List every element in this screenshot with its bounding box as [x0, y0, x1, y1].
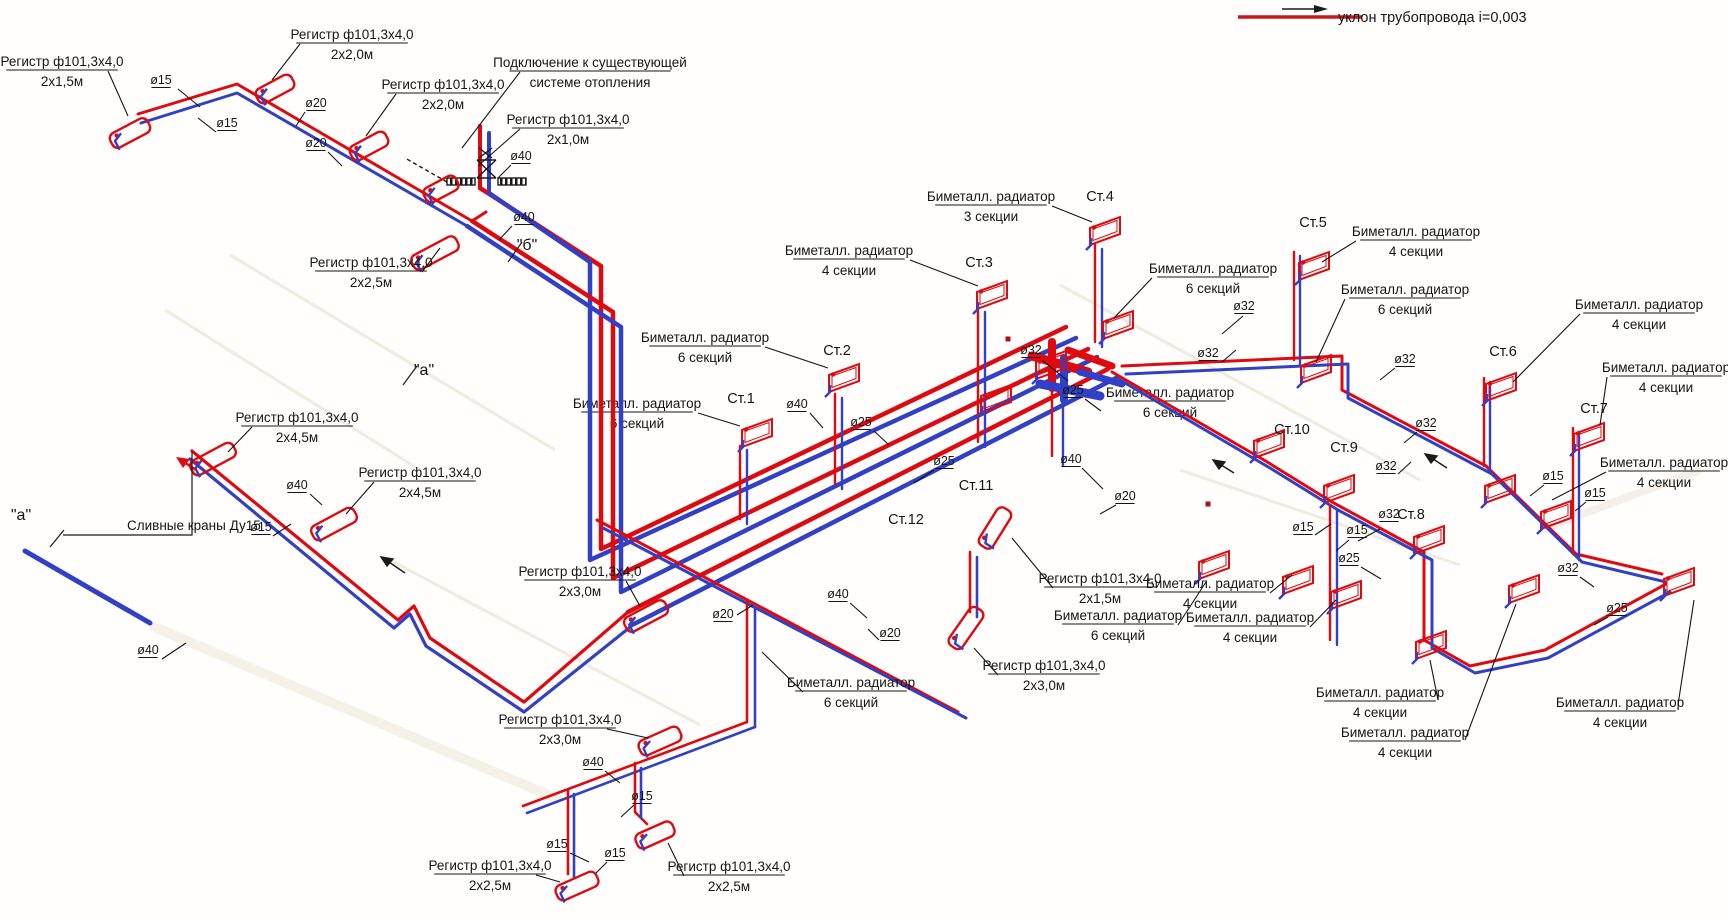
- label-text: Биметалл. радиатор: [1341, 725, 1469, 740]
- leader-line: [1404, 432, 1417, 443]
- leader-line: [1530, 485, 1544, 496]
- label-text: 6 секций: [610, 416, 664, 431]
- section-mark-section-a-left: "а": [11, 507, 31, 524]
- leader-line: [1082, 468, 1103, 489]
- label-text: ø32: [1197, 346, 1219, 360]
- radiator-supply-dot: [979, 289, 983, 293]
- radiator-symbol: [973, 281, 1007, 314]
- label-text: ø25: [1606, 601, 1628, 615]
- label-text: 4 секции: [1639, 380, 1693, 395]
- label-text: "а": [414, 362, 434, 379]
- label-text: Регистр ф101,3х4,0: [382, 77, 505, 92]
- leader-line: [228, 427, 252, 452]
- register-loop: [254, 73, 297, 106]
- label-text: ø32: [1233, 299, 1255, 313]
- reference-dot: [1006, 337, 1011, 342]
- register-symbol: [633, 820, 677, 853]
- label-text: 2х1,5м: [41, 74, 83, 89]
- label-text: 2х1,5м: [1079, 591, 1121, 606]
- leader-line: [366, 94, 396, 136]
- leader-line: [1361, 567, 1381, 579]
- register-symbol: [108, 116, 154, 152]
- radiator-symbol: [1570, 423, 1604, 456]
- leader-line: [108, 71, 128, 116]
- axonometric-piping-drawing: Биметалл. радиатор6 секцийБиметалл. ради…: [0, 0, 1728, 919]
- pipe-supply-trunk-2: [472, 221, 1088, 578]
- callout-reg-2x4-5-b: Регистр ф101,3х4,02х4,5м: [346, 465, 481, 514]
- leader-line: [198, 118, 216, 132]
- leader-line: [874, 431, 889, 445]
- register-symbol: [946, 605, 987, 653]
- leader-line: [162, 643, 186, 659]
- leader-line: [850, 603, 867, 618]
- label-text: ø32: [1415, 416, 1437, 430]
- radiator-return-elbow: [825, 385, 830, 397]
- label-text: ø25: [1062, 383, 1084, 397]
- radiator-supply-dot: [1105, 319, 1109, 323]
- flange-plate-right: [498, 178, 526, 185]
- label-text: ø20: [305, 136, 327, 150]
- label-text: ø20: [879, 626, 901, 640]
- label-text: Ст.4: [1086, 189, 1114, 205]
- callout-reg-2x2-5-top: Регистр ф101,3х4,02х2,5м: [310, 248, 440, 290]
- diameter-label-d25-d: ø25: [1338, 551, 1381, 579]
- label-text: Ст.9: [1330, 440, 1358, 456]
- label-text: Регистр ф101,3х4,0: [359, 465, 482, 480]
- callout-reg-2x2-5-bot-left: Регистр ф101,3х4,02х2,5м: [429, 858, 560, 893]
- label-text: Биметалл. радиатор: [641, 330, 769, 345]
- leader-line: [1012, 538, 1053, 588]
- label-text: ø20: [1114, 489, 1136, 503]
- riser-label-st12: Ст.12: [888, 512, 924, 528]
- label-text: Регистр ф101,3х4,0: [519, 564, 642, 579]
- leader-line: [1678, 600, 1694, 705]
- label-text: Ст.6: [1489, 344, 1517, 360]
- label-text: Биметалл. радиатор: [785, 243, 913, 258]
- radiator-symbol: [738, 419, 772, 452]
- heating-axonometric-scheme: Биметалл. радиатор6 секцийБиметалл. ради…: [0, 0, 1728, 919]
- register-loop: [348, 130, 391, 163]
- label-text: 4 секции: [1593, 715, 1647, 730]
- label-text: 2х2,0м: [331, 47, 373, 62]
- radiator-symbol: [1482, 373, 1516, 406]
- callout-reg-2x2-0-b: Регистр ф101,3х4,02х2,0м: [366, 77, 504, 136]
- legend: уклон трубопровода i=0,003: [1238, 5, 1527, 26]
- riser-label-st8: Ст.8: [1397, 507, 1425, 523]
- leader-line: [1085, 399, 1101, 411]
- label-text: Биметалл. радиатор: [927, 189, 1055, 204]
- radiator-supply-dot: [1666, 576, 1670, 580]
- label-text: Ст.5: [1299, 215, 1327, 231]
- callout-bim-6-mid-b: Биметалл. радиатор6 секций: [1054, 582, 1206, 643]
- label-text: 4 секции: [1637, 475, 1691, 490]
- label-text: 6 секций: [678, 350, 732, 365]
- callout-bim-4-bot-f: Биметалл. радиатор4 секции: [1556, 600, 1694, 730]
- label-text: Регистр ф101,3х4,0: [236, 410, 359, 425]
- label-text: системе отопления: [530, 75, 651, 90]
- label-text: 2х1,0м: [547, 132, 589, 147]
- connection-valve: [405, 148, 526, 185]
- label-text: 2х3,0м: [539, 732, 581, 747]
- leader-line: [621, 805, 634, 817]
- leader-line: [1222, 316, 1243, 334]
- label-text: Биметалл. радиатор: [1186, 610, 1314, 625]
- legend-arrow-head: [1314, 5, 1328, 13]
- callout-bim-3-st4: Биметалл. радиатор3 секции: [927, 189, 1092, 224]
- pipe-return-section-a: [25, 551, 150, 623]
- diameter-label-d20-c: ø20: [1100, 489, 1136, 514]
- leader-line: [1052, 206, 1092, 222]
- radiator-return-elbow: [1297, 376, 1302, 388]
- register-symbol: [309, 506, 360, 544]
- radiator-symbol: [1412, 631, 1446, 664]
- label-text: Ст.12: [888, 512, 924, 528]
- leader-line: [596, 862, 607, 873]
- diameter-label-d40-e: ø40: [786, 397, 823, 428]
- label-text: "а": [11, 507, 31, 524]
- callout-bim-4-st3: Биметалл. радиатор4 секции: [785, 243, 978, 286]
- leader-line: [765, 347, 828, 368]
- label-text: ø40: [286, 478, 308, 492]
- label-text: Ст.1: [727, 391, 755, 407]
- diameter-label-d40-b: ø40: [499, 210, 535, 240]
- label-text: ø40: [510, 149, 532, 163]
- radiator-return-elbow: [1481, 496, 1486, 508]
- label-text: ø15: [546, 837, 568, 851]
- leader-line: [1316, 299, 1345, 362]
- radiator-supply-dot: [1576, 431, 1580, 435]
- valve-dashed-leader: [405, 158, 447, 182]
- radiator-return-elbow: [1086, 238, 1091, 250]
- riser-label-st10: Ст.10: [1274, 422, 1310, 438]
- radiator-symbol: [1327, 581, 1361, 614]
- bg-line: [165, 310, 420, 470]
- radiator-supply-dot: [1511, 583, 1515, 587]
- diameter-label-d15-e: ø15: [1336, 523, 1368, 551]
- legend-label: уклон трубопровода i=0,003: [1338, 10, 1527, 26]
- leader-line: [1322, 241, 1356, 262]
- label-text: ø32: [1394, 352, 1416, 366]
- label-text: ø25: [850, 415, 872, 429]
- label-text: Биметалл. радиатор: [1556, 695, 1684, 710]
- diameter-label-d40-f: ø40: [1060, 452, 1103, 489]
- leader-line: [499, 226, 512, 240]
- register-loop: [977, 505, 1014, 551]
- callout-reg-2x2-0-a: Регистр ф101,3х4,02х2,0м: [272, 27, 413, 80]
- label-text: Биметалл. радиатор: [1600, 455, 1728, 470]
- callout-reg-2x1-5-topleft: Регистр ф101,3х4,02х1,5м: [1, 54, 128, 116]
- callout-reg-2x3-0-bottom: Регистр ф101,3х4,02х3,0м: [499, 712, 648, 747]
- riser-label-st9: Ст.9: [1330, 440, 1358, 456]
- label-text: ø40: [582, 755, 604, 769]
- register-loop: [554, 870, 601, 903]
- label-text: ø32: [1557, 561, 1579, 575]
- label-text: ø25: [1338, 551, 1360, 565]
- label-text: Сливные краны Ду15: [127, 518, 261, 533]
- label-text: ø20: [712, 607, 734, 621]
- diameter-label-d15-b: ø15: [198, 116, 238, 132]
- radiator-symbol: [1505, 575, 1539, 608]
- diameter-label-d40-d: ø40: [137, 643, 186, 659]
- riser-label-st3: Ст.3: [965, 255, 993, 271]
- riser-label-st2: Ст.2: [823, 343, 851, 359]
- label-text: 6 секций: [1378, 302, 1432, 317]
- section-mark-section-a-mid: "а": [414, 362, 434, 379]
- label-text: Биметалл. радиатор: [1149, 261, 1277, 276]
- label-text: Регистр ф101,3х4,0: [983, 658, 1106, 673]
- label-text: Регистр ф101,3х4,0: [668, 859, 791, 874]
- label-text: 2х2,5м: [350, 275, 392, 290]
- diameter-label-d40-g: ø40: [827, 587, 867, 618]
- radiator-supply-dot: [1487, 483, 1491, 487]
- register-symbol: [188, 441, 239, 479]
- label-text: 2х2,5м: [469, 878, 511, 893]
- label-drain-valves: Сливные краны Ду15: [127, 518, 261, 533]
- leader-line: [1315, 524, 1331, 535]
- label-text: Ст.10: [1274, 422, 1310, 438]
- callout-bim-4-st7: Биметалл. радиатор4 секции: [1600, 360, 1728, 425]
- leader-line: [346, 482, 374, 514]
- radiator-supply-dot: [983, 393, 987, 397]
- diameter-label-d25-b: ø25: [914, 454, 955, 483]
- riser-label-st11: Ст.11: [959, 478, 994, 494]
- label-text: Биметалл. радиатор: [1341, 282, 1469, 297]
- label-text: 2х2,0м: [422, 97, 464, 112]
- label-text: 4 секции: [1223, 630, 1277, 645]
- register-loop: [188, 441, 238, 478]
- label-text: ø15: [1542, 469, 1564, 483]
- register-loop: [309, 506, 359, 543]
- label-text: ø40: [786, 397, 808, 411]
- label-text: ø40: [827, 587, 849, 601]
- leader-line: [178, 89, 200, 107]
- radiator-symbol: [1297, 355, 1331, 388]
- callout-reg-2x4-5-a: Регистр ф101,3х4,02х4,5м: [228, 410, 358, 452]
- label-text: Биметалл. радиатор: [1146, 576, 1274, 591]
- callout-bim-junction: Биметалл. радиатор6 секций: [1106, 385, 1234, 420]
- radiator-symbol: [825, 364, 859, 397]
- reference-dot: [1206, 502, 1211, 507]
- radiator-supply-dot: [1301, 260, 1305, 264]
- radiator-supply-dot: [1326, 483, 1330, 487]
- register-symbol: [421, 173, 461, 206]
- label-text: ø40: [137, 643, 159, 657]
- register-loop: [633, 820, 676, 851]
- radiator-supply-dot: [1418, 639, 1422, 643]
- leader-line: [868, 629, 879, 640]
- label-text: ø32: [1020, 343, 1042, 357]
- radiator-supply-dot: [1416, 534, 1420, 538]
- label-text: 2х4,5м: [276, 430, 318, 445]
- riser-label-st6: Ст.6: [1489, 344, 1517, 360]
- radiator-supply-dot: [1038, 359, 1042, 363]
- callout-reg-2x2-5-bot-right: Регистр ф101,3х4,02х2,5м: [668, 843, 791, 894]
- radiator-supply-dot: [1488, 381, 1492, 385]
- register-loop: [637, 725, 684, 758]
- leader-line: [762, 652, 803, 692]
- label-text: 4 секции: [1378, 745, 1432, 760]
- label-text: 2х2,5м: [708, 879, 750, 894]
- label-text: ø32: [1375, 459, 1397, 473]
- radiator-supply-dot: [1543, 509, 1547, 513]
- label-text: 4 секции: [822, 263, 876, 278]
- radiator-symbol: [1279, 566, 1313, 599]
- label-text: 3 секции: [964, 209, 1018, 224]
- tick-a-left: [50, 530, 64, 547]
- flow-arrow: [1425, 454, 1447, 468]
- label-text: 4 секции: [1612, 317, 1666, 332]
- diameter-label-d32-d: ø32: [1380, 352, 1416, 380]
- radiator-supply-dot: [1303, 363, 1307, 367]
- label-text: ø25: [933, 454, 955, 468]
- register-loop: [946, 605, 985, 652]
- label-text: Ст.3: [965, 255, 993, 271]
- label-text: Биметалл. радиатор: [1054, 608, 1182, 623]
- label-text: 6 секций: [824, 695, 878, 710]
- label-text: Регистр ф101,3х4,0: [291, 27, 414, 42]
- radiator-return-elbow: [1279, 587, 1284, 599]
- callout-bim-4-mid-a: Биметалл. радиатор4 секции: [1146, 575, 1292, 611]
- radiator-return-elbow: [1412, 652, 1417, 664]
- label-text: Регистр ф101,3х4,0: [310, 255, 433, 270]
- diameter-label-d15-d: ø15: [1292, 520, 1331, 535]
- label-text: Подключение к существующей: [493, 55, 687, 70]
- label-text: Биметалл. радиатор: [1352, 224, 1480, 239]
- label-text: ø15: [150, 73, 172, 87]
- callout-bim-4-st5: Биметалл. радиатор4 секции: [1322, 224, 1480, 262]
- leader-line: [737, 605, 753, 615]
- callout-reg-2x1-0: Регистр ф101,3х4,02х1,0м: [478, 112, 629, 166]
- label-text: ø40: [1060, 452, 1082, 466]
- label-text: ø40: [513, 210, 535, 224]
- callout-bim-6-st2: Биметалл. радиатор6 секций: [641, 330, 828, 368]
- riser-label-st7: Ст.7: [1580, 401, 1608, 417]
- register-symbol: [254, 73, 298, 108]
- label-text: 4 секции: [1389, 244, 1443, 259]
- leader-line: [1380, 368, 1395, 380]
- faint-background-lines: [150, 255, 1700, 800]
- label-text: ø15: [631, 789, 653, 803]
- leader-line: [698, 413, 740, 426]
- label-text: Биметалл. радиатор: [787, 675, 915, 690]
- label-text: ø15: [604, 846, 626, 860]
- radiator-supply-dot: [1092, 225, 1096, 229]
- diameter-label-d15-j: ø15: [596, 846, 626, 873]
- leader-line: [914, 470, 934, 483]
- label-text: Регистр ф101,3х4,0: [1039, 571, 1162, 586]
- callout-reg-2x1-5-right: Регистр ф101,3х4,02х1,5м: [1012, 538, 1161, 606]
- label-text: Биметалл. радиатор: [1575, 297, 1703, 312]
- radiator-supply-dot: [744, 427, 748, 431]
- label-text: Регистр ф101,3х4,0: [1, 54, 124, 69]
- leader-line: [1100, 505, 1116, 514]
- radiator-supply-dot: [1256, 438, 1260, 442]
- leader-line: [310, 494, 322, 505]
- riser-label-st4: Ст.4: [1086, 189, 1114, 205]
- label-text: Регистр ф101,3х4,0: [499, 712, 622, 727]
- register-symbol: [977, 505, 1016, 552]
- diameter-label-d40-c: ø40: [286, 478, 322, 505]
- riser-label-st5: Ст.5: [1299, 215, 1327, 231]
- diameter-label-d40-h: ø40: [582, 755, 620, 783]
- label-text: 2х3,0м: [559, 584, 601, 599]
- callout-bim-6-st1: Биметалл. радиатор6 секций: [573, 396, 740, 431]
- diameter-label-d40-a: ø40: [498, 149, 532, 178]
- label-text: 6 секций: [1186, 281, 1240, 296]
- label-text: Биметалл. радиатор: [1602, 360, 1728, 375]
- label-text: Биметалл. радиатор: [1106, 385, 1234, 400]
- label-text: Регистр ф101,3х4,0: [507, 112, 630, 127]
- callout-bim-4-bot-e: Биметалл. радиатор4 секции: [1341, 604, 1516, 760]
- label-text: Ст.11: [959, 478, 994, 494]
- leader-line: [810, 413, 823, 428]
- diameter-label-d15-f: ø15: [1530, 469, 1564, 496]
- callout-reg-2x3-0-right: Регистр ф101,3х4,02х3,0м: [974, 648, 1105, 693]
- label-text: ø15: [1292, 520, 1314, 534]
- leader-line: [1580, 577, 1594, 587]
- riser-label-st1: Ст.1: [727, 391, 755, 407]
- register-symbol: [554, 870, 602, 904]
- label-text: 4 секции: [1353, 705, 1407, 720]
- radiator-supply-dot: [831, 372, 835, 376]
- label-text: ø15: [1346, 523, 1368, 537]
- leader-line: [498, 165, 511, 178]
- leader-line: [1513, 314, 1580, 382]
- label-text: 6 секций: [1091, 628, 1145, 643]
- label-text: 4 секции: [1183, 596, 1237, 611]
- leader-line: [536, 875, 560, 882]
- callout-bim-4-bot-d: Биметалл. радиатор4 секции: [1316, 660, 1444, 720]
- callout-bim-6-bot-g: Биметалл. радиатор6 секций: [762, 652, 915, 710]
- label-text: 2х3,0м: [1023, 678, 1065, 693]
- flange-plate-left: [447, 178, 475, 185]
- callout-bim-6-st5b: Биметалл. радиатор6 секций: [1316, 282, 1469, 362]
- diameter-label-d20-e: ø20: [868, 626, 901, 641]
- flow-arrow: [1213, 460, 1234, 473]
- label-text: Ст.2: [823, 343, 851, 359]
- leader-line: [607, 729, 648, 738]
- label-text: ø15: [216, 116, 238, 130]
- diameter-label-d32-c: ø32: [1222, 299, 1255, 334]
- label-text: Биметалл. радиатор: [1316, 685, 1444, 700]
- label-text: Ст.7: [1580, 401, 1608, 417]
- label-text: Ст.8: [1397, 507, 1425, 523]
- radiator-supply-dot: [1333, 589, 1337, 593]
- label-text: ø20: [305, 96, 327, 110]
- radiator-supply-dot: [1201, 559, 1205, 563]
- label-text: 2х4,5м: [399, 485, 441, 500]
- label-text: ø15: [1584, 486, 1606, 500]
- radiator-return-elbow: [1505, 596, 1510, 608]
- label-text: Регистр ф101,3х4,0: [429, 858, 552, 873]
- register-symbol: [348, 130, 392, 165]
